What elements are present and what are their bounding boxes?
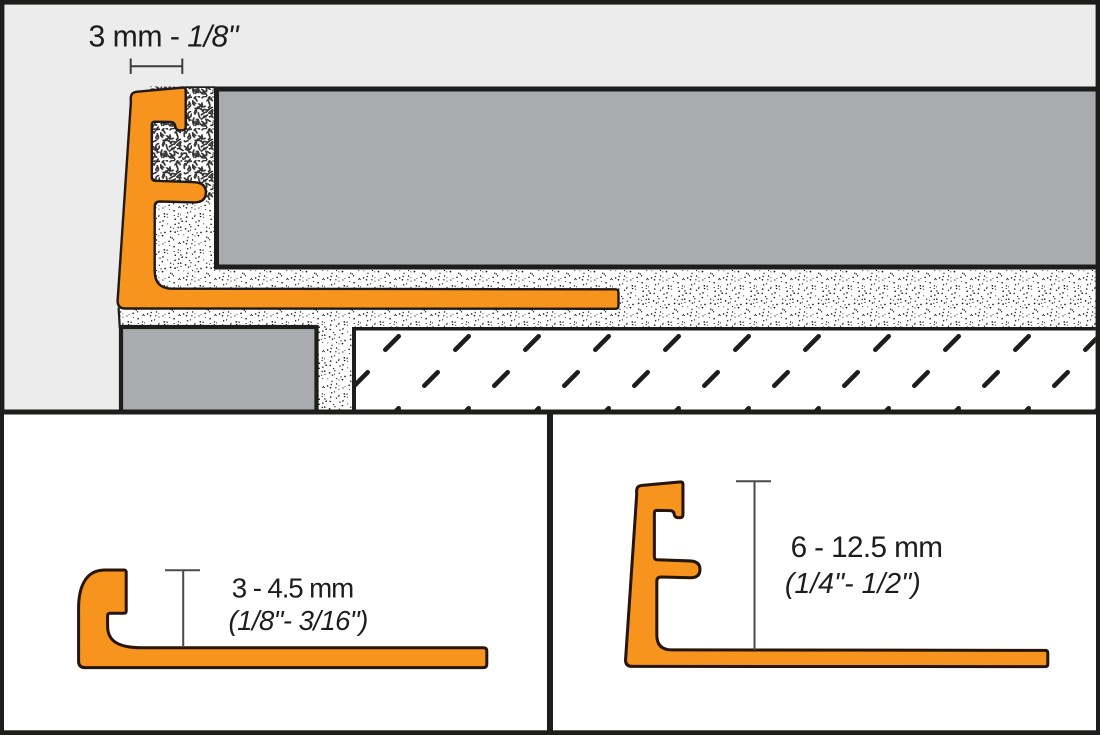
svg-text:(1/4"- 1/2"): (1/4"- 1/2") bbox=[785, 568, 921, 600]
svg-text:(1/8"- 3/16"): (1/8"- 3/16") bbox=[229, 605, 368, 636]
svg-text:3 - 4.5 mm: 3 - 4.5 mm bbox=[232, 573, 353, 604]
svg-text:6 - 12.5 mm: 6 - 12.5 mm bbox=[791, 531, 943, 564]
svg-text:3 mm - 1/8": 3 mm - 1/8" bbox=[89, 21, 240, 54]
